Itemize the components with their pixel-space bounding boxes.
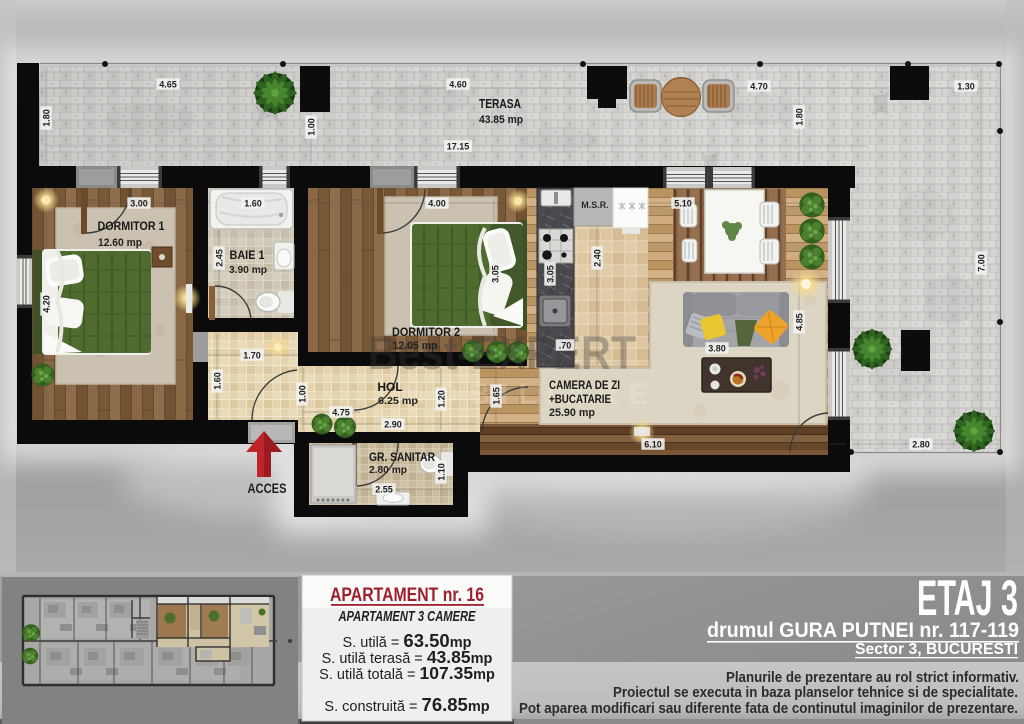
svg-text:7.00: 7.00: [976, 254, 986, 272]
svg-text:6.10: 6.10: [644, 439, 662, 449]
svg-text:M.S.R.: M.S.R.: [581, 200, 609, 210]
svg-text:1.60: 1.60: [244, 198, 262, 208]
svg-text:DORMITOR 1: DORMITOR 1: [98, 219, 165, 233]
svg-text:1.20: 1.20: [436, 390, 446, 408]
svg-text:4.60: 4.60: [449, 79, 467, 89]
svg-text:Sector 3, BUCURESTI: Sector 3, BUCURESTI: [855, 641, 1018, 658]
svg-text:3.05: 3.05: [490, 265, 500, 283]
svg-text:1.30: 1.30: [957, 81, 975, 91]
svg-text:2.55: 2.55: [375, 484, 393, 494]
svg-text:ACCES: ACCES: [248, 481, 287, 496]
svg-text:1.70: 1.70: [243, 350, 261, 360]
svg-text:1.60: 1.60: [212, 372, 222, 390]
svg-text:1.65: 1.65: [491, 387, 501, 405]
svg-text:3.00: 3.00: [130, 198, 148, 208]
svg-text:12.60 mp: 12.60 mp: [98, 237, 142, 249]
svg-text:ETAJ 3: ETAJ 3: [917, 570, 1018, 626]
svg-text:BAIE 1: BAIE 1: [230, 250, 266, 262]
svg-text:HOL: HOL: [377, 380, 402, 394]
svg-text:3.80: 3.80: [708, 343, 726, 353]
svg-text:Proiectul se executa in baza p: Proiectul se executa in baza planselor t…: [613, 684, 1018, 701]
svg-text:.70: .70: [559, 340, 572, 350]
svg-text:2.80 mp: 2.80 mp: [369, 464, 407, 476]
svg-text:2.45: 2.45: [214, 249, 224, 267]
svg-text:43.85 mp: 43.85 mp: [479, 114, 523, 126]
svg-text:APARTAMENT nr. 16: APARTAMENT nr. 16: [330, 585, 484, 606]
svg-text:4.00: 4.00: [428, 198, 446, 208]
svg-text:2.90: 2.90: [384, 419, 402, 429]
svg-text:2.80: 2.80: [912, 439, 930, 449]
svg-text:1.00: 1.00: [306, 118, 316, 136]
svg-text:GR. SANITAR: GR. SANITAR: [369, 450, 435, 464]
svg-text:drumul GURA PUTNEI nr. 117-119: drumul GURA PUTNEI nr. 117-119: [707, 619, 1019, 642]
svg-text:4.70: 4.70: [750, 81, 768, 91]
svg-text:CAMERA DE ZI: CAMERA DE ZI: [549, 378, 620, 392]
svg-text:6.25 mp: 6.25 mp: [378, 395, 418, 407]
svg-text:DORMITOR 2: DORMITOR 2: [392, 325, 460, 339]
svg-text:4.65: 4.65: [159, 79, 177, 89]
svg-text:5.10: 5.10: [674, 198, 692, 208]
svg-text:1.10: 1.10: [436, 463, 446, 481]
svg-text:25.90 mp: 25.90 mp: [549, 407, 595, 419]
svg-text:1.00: 1.00: [297, 385, 307, 403]
svg-text:4.20: 4.20: [41, 295, 51, 313]
svg-text:1.80: 1.80: [41, 109, 51, 127]
svg-text:APARTAMENT 3 CAMERE: APARTAMENT 3 CAMERE: [338, 608, 476, 625]
svg-text:3.90 mp: 3.90 mp: [229, 264, 267, 276]
svg-text:1.80: 1.80: [794, 108, 804, 126]
svg-text:+BUCATARIE: +BUCATARIE: [549, 392, 611, 406]
svg-text:17.15: 17.15: [447, 141, 470, 151]
svg-text:Pot aparea modificari sau dife: Pot aparea modificari sau diferente fata…: [519, 700, 1018, 717]
svg-text:2.40: 2.40: [592, 249, 602, 267]
svg-text:4.85: 4.85: [794, 313, 804, 331]
svg-text:12.05 mp: 12.05 mp: [393, 340, 438, 352]
svg-text:4.75: 4.75: [332, 407, 350, 417]
svg-text:TERASA: TERASA: [479, 97, 521, 111]
svg-text:3.05: 3.05: [545, 265, 555, 283]
